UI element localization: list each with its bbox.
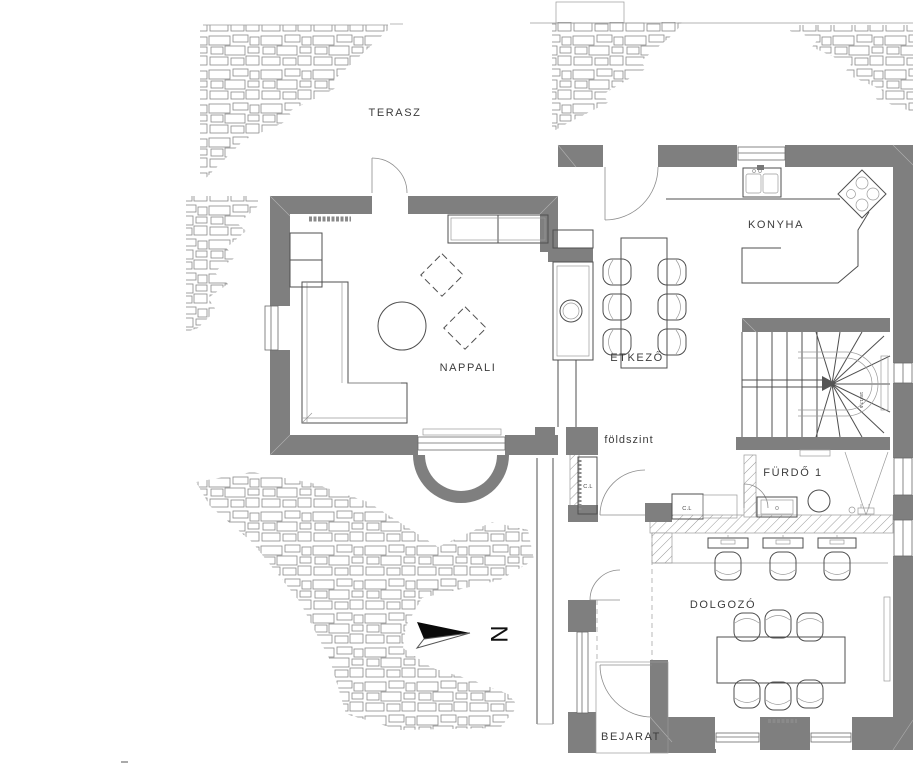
room-label-bejarat: BEJARAT [601, 731, 661, 743]
wall [645, 503, 672, 522]
desk [818, 535, 856, 548]
meeting-table [717, 637, 845, 683]
closet-box-2 [703, 495, 737, 518]
corridor-hatch-left [652, 533, 672, 563]
wall [893, 145, 913, 363]
wall [566, 427, 598, 455]
closet-label-a: C.L [583, 484, 592, 490]
floor-plan-page: 18×17,5 [0, 0, 915, 768]
wall [408, 196, 558, 214]
wall [893, 383, 913, 458]
armchair [444, 307, 486, 349]
wall [736, 437, 890, 450]
window-stair-right [894, 363, 912, 383]
stone-texture [121, 2, 913, 763]
armchair [421, 254, 463, 296]
toilet [808, 490, 830, 512]
dining-chair [603, 259, 631, 285]
floor-hatch [570, 448, 893, 563]
radiator [884, 597, 890, 681]
meeting-chair [734, 680, 760, 708]
dining-chair [658, 259, 686, 285]
stair-direction-arrow [822, 376, 836, 391]
wall [568, 600, 596, 632]
desk-chair [824, 552, 850, 580]
wall [270, 196, 290, 306]
cabinet [290, 260, 322, 287]
window-bath-right [894, 458, 912, 495]
cooktop [838, 170, 886, 218]
meeting-chair [765, 682, 791, 710]
wall [658, 145, 737, 167]
dining-table [621, 238, 667, 368]
dining-furniture [603, 238, 686, 368]
meeting-chair [797, 680, 823, 708]
bathroom-fixtures [757, 450, 888, 517]
stair-rail-post [881, 356, 888, 410]
stone-patch-top-middle [552, 22, 682, 132]
door-hall [600, 470, 645, 515]
partition-lines [537, 332, 888, 753]
room-label-terasz: TERASZ [369, 107, 422, 119]
window-living-left [265, 306, 278, 350]
stray-mark [121, 761, 128, 763]
kitchen-sink [743, 165, 781, 197]
window-kitchen-top [738, 147, 785, 160]
window-dolgozo-right [894, 520, 912, 556]
wall [558, 145, 603, 167]
door-entry-inner [590, 570, 620, 600]
wall [742, 318, 890, 332]
window-dolgozo-bottom-1 [716, 733, 759, 742]
meeting-chair [765, 610, 791, 638]
cabinet [290, 233, 322, 260]
window-entry-left [577, 632, 588, 713]
wall [893, 495, 913, 520]
room-label-furdo1: FÜRDŐ 1 [763, 465, 822, 479]
desk-chair [715, 552, 741, 580]
room-label-konyha: KONYHA [748, 219, 804, 231]
entry-arc-step [413, 455, 509, 503]
door-kitchen [605, 167, 658, 220]
wall [540, 196, 558, 252]
site-pillar-outline [556, 2, 624, 23]
room-label-nappali: NAPPALI [440, 362, 497, 374]
room-label-etkezo: ETKEZŐ [610, 350, 664, 364]
door-front [600, 665, 652, 717]
stone-patch-bottom-left [196, 472, 534, 730]
wall [893, 556, 913, 717]
corridor-hatch [650, 515, 893, 533]
dining-chair [658, 294, 686, 320]
wall [568, 712, 596, 753]
floor-plan-drawing: 18×17,5 [0, 0, 915, 768]
bath-shelf [800, 450, 830, 456]
dining-chair [603, 294, 631, 320]
desk [708, 535, 748, 548]
window-living-bottom [418, 429, 505, 450]
north-arrow: N [417, 622, 512, 648]
sideboard [448, 215, 548, 243]
stone-patch-top-right [790, 25, 913, 112]
floor-label: földszint [604, 434, 653, 446]
winder-stairs: 18×17,5 [742, 332, 890, 437]
stone-patch-top-left [200, 25, 388, 178]
wall [270, 435, 418, 455]
sofa-cushion-lines [302, 282, 407, 423]
fireplace-back-wall [548, 248, 593, 262]
coffee-table [378, 302, 426, 350]
stone-patch-left [186, 196, 258, 332]
desk-chair [770, 552, 796, 580]
bathroom-vanity [757, 497, 797, 517]
wall [650, 660, 668, 710]
shower [845, 452, 888, 515]
wall [785, 145, 893, 167]
north-label: N [485, 625, 512, 642]
stair-note: 18×17,5 [859, 392, 864, 409]
wall [535, 427, 555, 455]
door-terrace [372, 158, 407, 193]
desk [763, 535, 803, 548]
sofa [302, 282, 407, 423]
wall [760, 717, 810, 750]
room-label-dolgozo: DOLGOZÓ [690, 598, 756, 611]
closet-label-b: C.L [682, 506, 691, 512]
window-dolgozo-bottom-2 [811, 733, 851, 742]
